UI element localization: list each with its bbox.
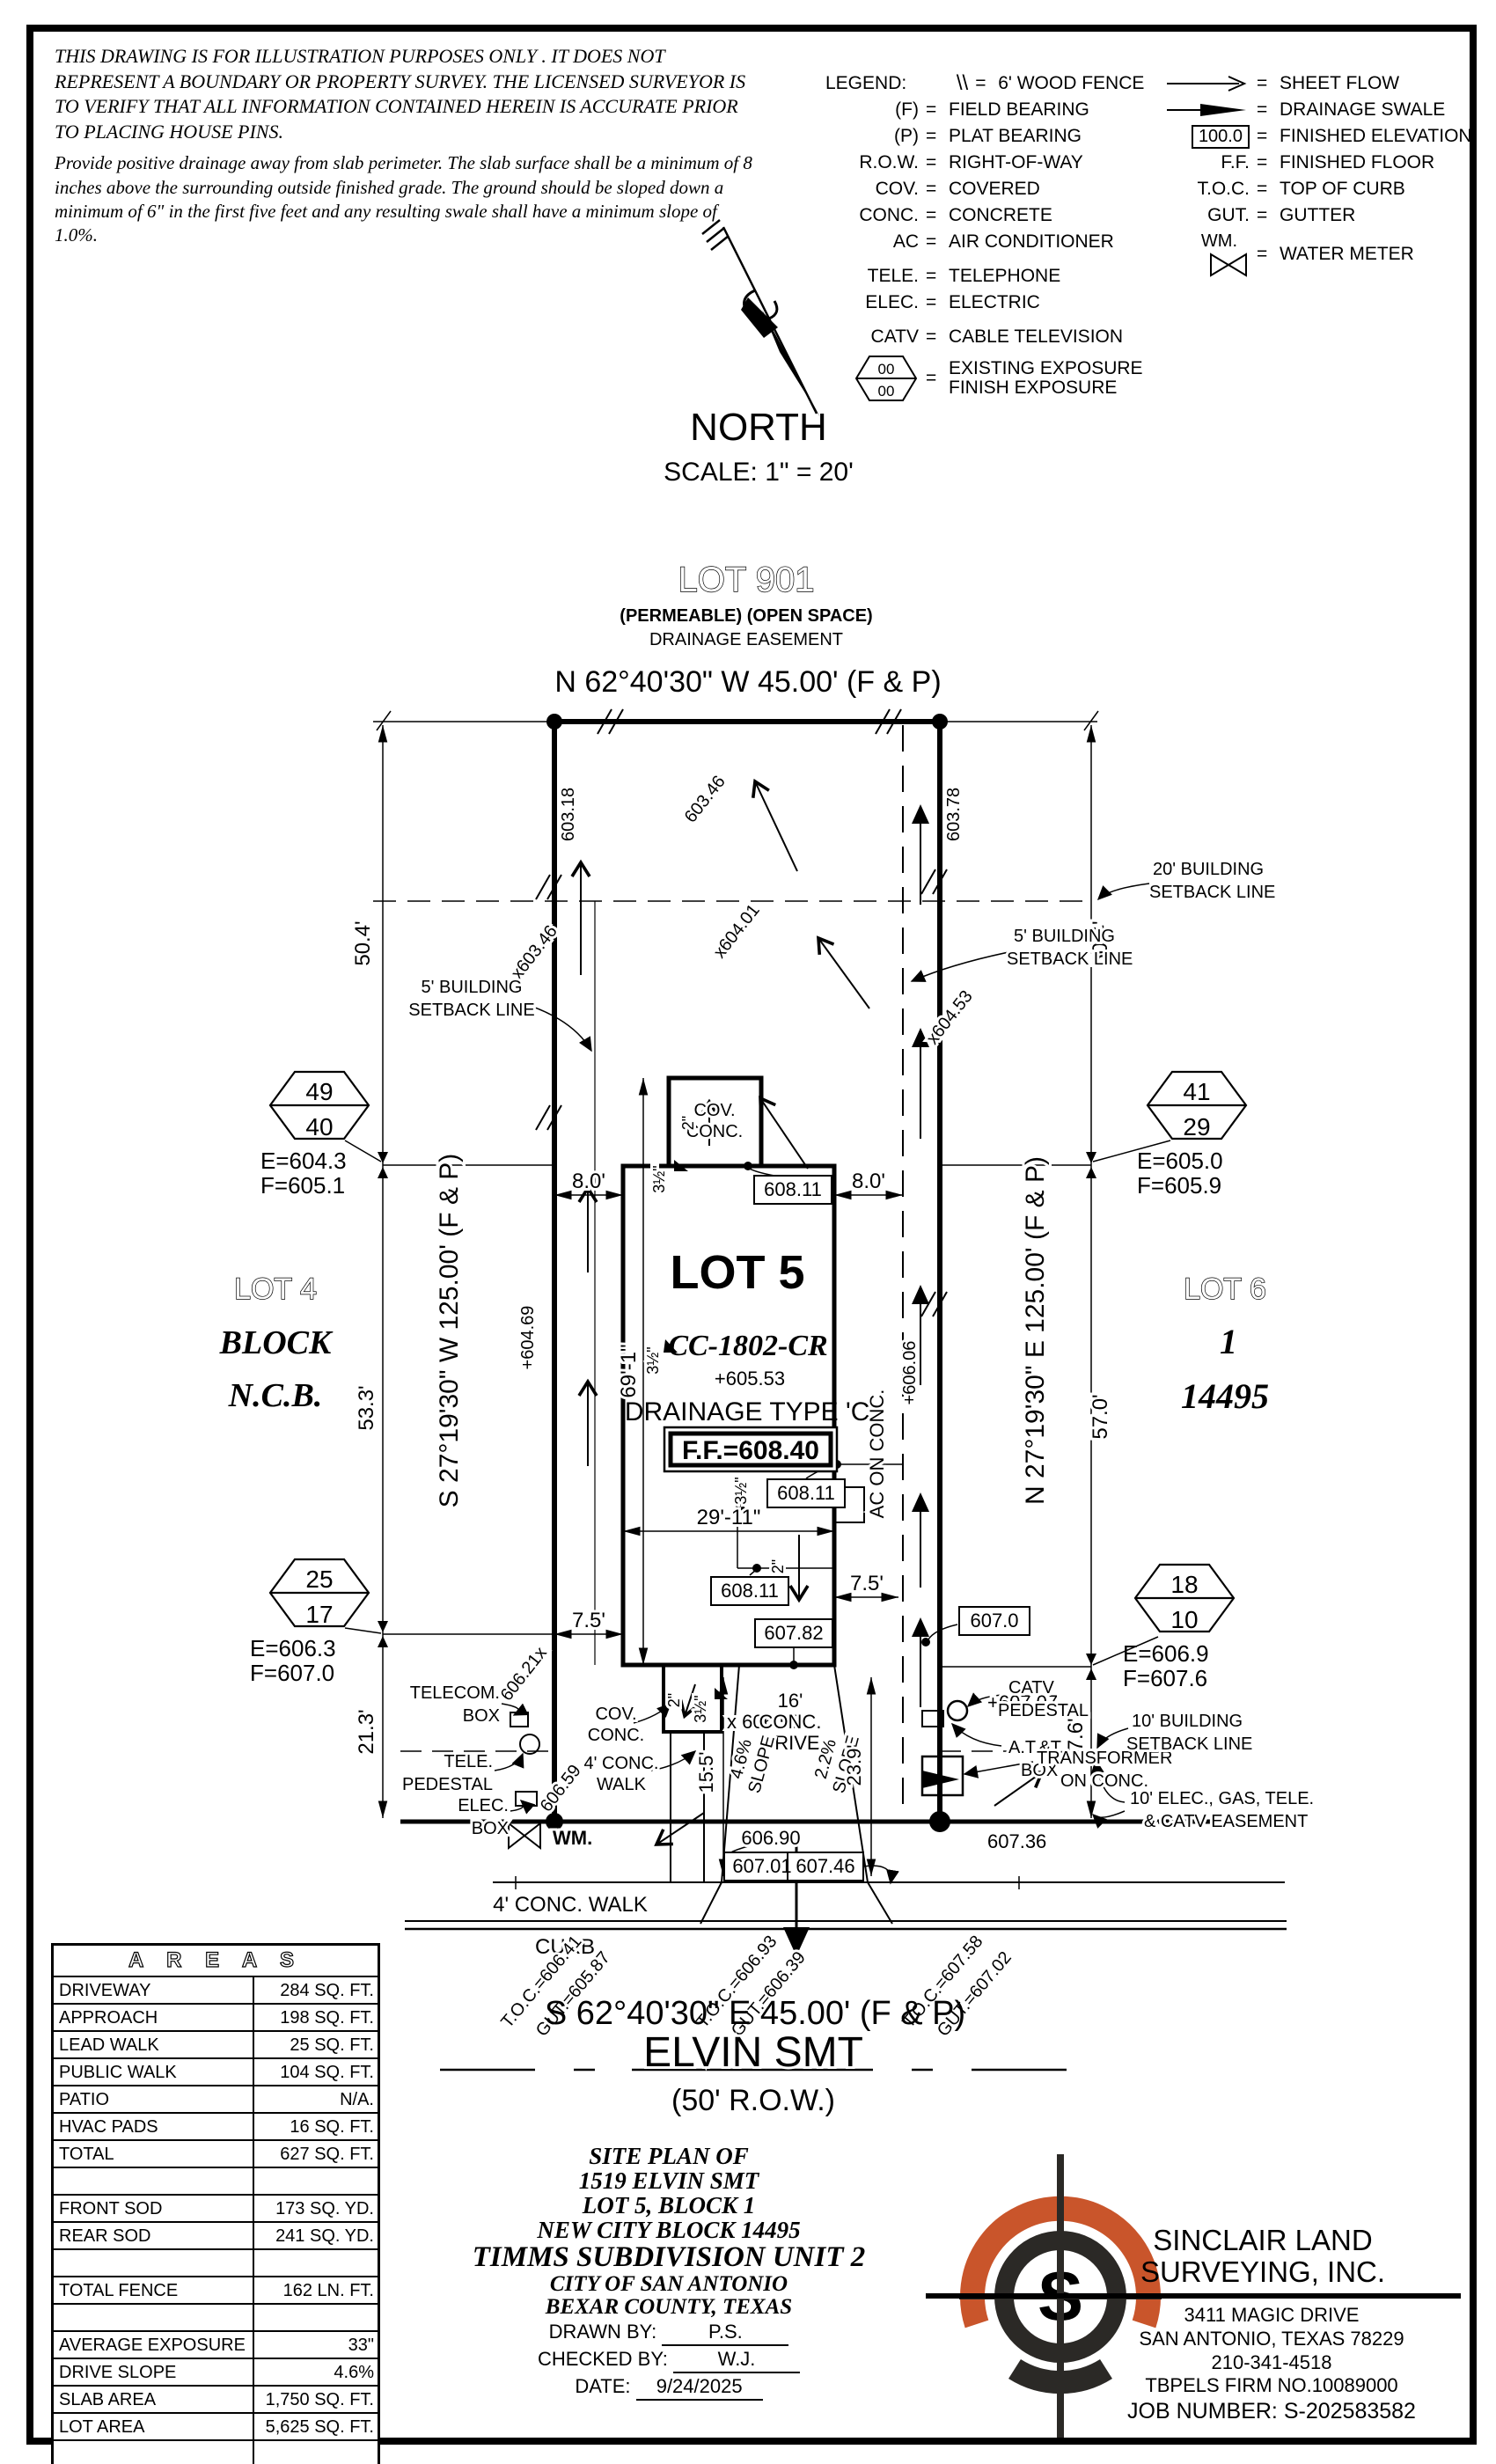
area-value (254, 2441, 378, 2464)
table-row: TOTAL 627 SQ. FT. (54, 2141, 378, 2168)
elev-607-46: 607.46 (796, 1855, 854, 1877)
street-name: ELVIN SMT (643, 2029, 863, 2076)
table-row (54, 2441, 378, 2464)
dim-8-east: 8.0' (852, 1170, 885, 1193)
telecom-box-symbol (510, 1712, 528, 1727)
walk4-l2: WALK (597, 1775, 647, 1794)
area-value: 5,625 SQ. FT. (254, 2414, 378, 2439)
bearing-west: S 27°19'30" W 125.00' (F & P) (435, 1154, 464, 1508)
conc-bottom: CONC. (588, 1726, 644, 1745)
checked-by-row: CHECKED BY: W.J. (414, 2348, 924, 2373)
bearing-south: S 62°40'30" E 45.00' (F & P) (545, 1995, 965, 2032)
elev-607-01: 607.01 (732, 1855, 791, 1877)
title-l5: TIMMS SUBDIVISION UNIT 2 (414, 2242, 924, 2272)
spot-606-59: 606.59 (537, 1761, 585, 1815)
logo-divider-line (926, 2293, 1461, 2299)
ef-br-e: E=606.9 (1123, 1640, 1209, 1667)
dim-53-3: 53.3' (355, 1385, 378, 1430)
firm-tbpels: TBPELS FIRM NO.10089000 (1104, 2374, 1439, 2398)
drainage-type: DRAINAGE TYPE 'C' (625, 1397, 875, 1426)
pad-elevation: +605.53 (715, 1368, 785, 1390)
area-value: 241 SQ. YD. (254, 2223, 378, 2248)
area-label (54, 2305, 254, 2330)
dim-29-11-label: 29'-11" (697, 1506, 761, 1529)
spot-603-46: 603.46 (681, 772, 730, 826)
hex-tr-top: 41 (1183, 1078, 1210, 1105)
area-value: 173 SQ. YD. (254, 2196, 378, 2221)
area-label: LEAD WALK (54, 2032, 254, 2057)
bearing-east: N 27°19'30" E 125.00' (F & P) (1021, 1156, 1050, 1505)
area-label: DRIVEWAY (54, 1977, 254, 2003)
setback20-l1: 20' BUILDING (1153, 860, 1264, 879)
ef-tl-e: E=604.3 (260, 1148, 347, 1174)
model-number: CC-1802-CR (668, 1330, 827, 1362)
area-value: 33" (254, 2332, 378, 2358)
area-value: 25 SQ. FT. (254, 2032, 378, 2057)
dim-2in-a: 2" (679, 1116, 697, 1130)
firm-phone: 210-341-4518 (1104, 2351, 1439, 2375)
elev-608-11-a: 608.11 (764, 1178, 822, 1200)
easement-l1: 10' ELEC., GAS, TELE. (1130, 1789, 1314, 1808)
area-value: 162 LN. FT. (254, 2277, 378, 2303)
scale-label: SCALE: 1" = 20' (664, 458, 854, 487)
telep-l1: TELE. (444, 1752, 493, 1771)
lot6-label: LOT 6 (1184, 1272, 1266, 1306)
catv-pedestal-symbol (948, 1701, 967, 1720)
telep-l2: PEDESTAL (402, 1775, 493, 1794)
lot4-ncb: N.C.B. (228, 1377, 323, 1414)
area-label: TOTAL FENCE (54, 2277, 254, 2303)
title-l6: CITY OF SAN ANTONIO (414, 2273, 924, 2296)
area-value (254, 2168, 378, 2194)
areas-title: A R E A S (54, 1946, 378, 1977)
hex-bl-bottom: 17 (305, 1601, 333, 1628)
easement-l2: & CATV EASEMENT (1144, 1812, 1308, 1831)
catv-l1: CATV (1008, 1678, 1055, 1698)
dim-50-4-west: 50.4' (351, 920, 375, 965)
spot-606-21: 606.21x (497, 1643, 551, 1705)
finished-floor: F.F.=608.40 (682, 1436, 819, 1465)
firm-addr-city: SAN ANTONIO, TEXAS 78229 (1104, 2328, 1439, 2351)
table-row: REAR SOD 241 SQ. YD. (54, 2223, 378, 2250)
elev-607-0: 607.0 (970, 1610, 1018, 1632)
table-row: SLAB AREA 1,750 SQ. FT. (54, 2387, 378, 2414)
lot901-sub: (PERMEABLE) (OPEN SPACE) (620, 606, 872, 626)
area-value: 1,750 SQ. FT. (254, 2387, 378, 2412)
lot901-label: LOT 901 (678, 561, 815, 599)
site-plan-sheet: THIS DRAWING IS FOR ILLUSTRATION PURPOSE… (0, 0, 1496, 2464)
lot6-num: 1 (1220, 1322, 1237, 1361)
elecbox-l2: BOX (472, 1819, 509, 1838)
table-row: PATIO N/A. (54, 2086, 378, 2114)
hex-br-top: 18 (1170, 1571, 1198, 1598)
ac-on-conc: AC ON CONC. (866, 1390, 888, 1519)
title-l7: BEXAR COUNTY, TEXAS (414, 2296, 924, 2319)
title-l1: SITE PLAN OF (414, 2144, 924, 2168)
dim-35-d: 3½" (692, 1695, 709, 1722)
water-meter-symbol (509, 1823, 540, 1848)
setback5-east-l2: SETBACK LINE (1007, 950, 1133, 969)
north-label: NORTH (690, 406, 827, 449)
dim-35-c: 3½" (732, 1477, 750, 1504)
area-label: HVAC PADS (54, 2114, 254, 2139)
area-label: LOT AREA (54, 2414, 254, 2439)
elecbox-l1: ELEC. (458, 1796, 509, 1815)
date-row: DATE: 9/24/2025 (414, 2375, 924, 2401)
title-l4: NEW CITY BLOCK 14495 (414, 2218, 924, 2242)
drive-conc: CONC. (759, 1711, 822, 1733)
setback5-west-l1: 5' BUILDING (422, 978, 523, 997)
area-label: TOTAL (54, 2141, 254, 2167)
table-row (54, 2250, 378, 2277)
lot4-label: LOT 4 (234, 1272, 317, 1306)
area-value: 4.6% (254, 2359, 378, 2385)
elec-box-symbol (516, 1792, 537, 1806)
hex-tl-bottom: 40 (305, 1113, 333, 1140)
table-row: DRIVEWAY 284 SQ. FT. (54, 1977, 378, 2005)
telecom-l1: TELECOM. (410, 1683, 500, 1703)
area-label (54, 2250, 254, 2276)
area-value: 284 SQ. FT. (254, 1977, 378, 2003)
hex-bl-top: 25 (305, 1566, 333, 1593)
area-value (254, 2250, 378, 2276)
areas-rows: DRIVEWAY 284 SQ. FT. APPROACH 198 SQ. FT… (54, 1977, 378, 2464)
job-number: JOB NUMBER: S-202583582 (1096, 2399, 1448, 2424)
title-l2: 1519 ELVIN SMT (414, 2168, 924, 2193)
setback10-l1: 10' BUILDING (1132, 1712, 1243, 1731)
firm-addr-street: 3411 MAGIC DRIVE (1104, 2304, 1439, 2328)
area-value: 198 SQ. FT. (254, 2005, 378, 2030)
sheet-flow-arrows (581, 781, 1042, 1844)
firm-name: SINCLAIR LAND SURVEYING, INC. (1104, 2225, 1421, 2289)
street-row: (50' R.O.W.) (671, 2084, 835, 2117)
lot6-ncb: 14495 (1181, 1376, 1269, 1416)
checked-by-label: CHECKED BY: (538, 2348, 668, 2370)
drawn-by-value: P.S. (662, 2321, 788, 2346)
dim-2in-b: 2" (769, 1559, 787, 1573)
dim-35-b: 3½" (644, 1346, 662, 1374)
table-row: DRIVE SLOPE 4.6% (54, 2359, 378, 2387)
date-value: 9/24/2025 (636, 2375, 763, 2401)
title-block: SITE PLAN OF 1519 ELVIN SMT LOT 5, BLOCK… (414, 2144, 924, 2401)
dim-69-1-label: 69'-1" (617, 1344, 641, 1397)
area-label: APPROACH (54, 2005, 254, 2030)
drive-16: 16' (778, 1690, 803, 1712)
table-row: LEAD WALK 25 SQ. FT. (54, 2032, 378, 2059)
dim-75-west: 7.5' (572, 1609, 605, 1632)
hex-tr-bottom: 29 (1183, 1113, 1210, 1140)
spot-607-36: 607.36 (987, 1830, 1046, 1852)
area-value: N/A. (254, 2086, 378, 2112)
spot-606-06: +606.06 (900, 1341, 920, 1405)
ef-tr-f: F=605.9 (1137, 1172, 1221, 1199)
ef-bl-f: F=607.0 (250, 1660, 334, 1686)
area-label: DRIVE SLOPE (54, 2359, 254, 2385)
lot901-sub2: DRAINAGE EASEMENT (649, 630, 843, 649)
dim-75-east: 7.5' (850, 1572, 884, 1595)
table-row: TOTAL FENCE 162 LN. FT. (54, 2277, 378, 2305)
lot4-block: BLOCK (219, 1324, 334, 1361)
spot-603-78: 603.78 (944, 788, 964, 841)
area-label (54, 2441, 254, 2464)
telecom-l2: BOX (463, 1706, 500, 1726)
spot-x604-53: x604.53 (923, 986, 977, 1048)
table-row: FRONT SOD 173 SQ. YD. (54, 2196, 378, 2223)
table-row (54, 2168, 378, 2196)
setback5-west-l2: SETBACK LINE (408, 1001, 534, 1020)
date-label: DATE: (575, 2375, 630, 2397)
dim-57-0: 57.0' (1089, 1394, 1112, 1439)
area-label: FRONT SOD (54, 2196, 254, 2221)
porch-cov: COV. (693, 1101, 735, 1120)
elev-608-11-c: 608.11 (721, 1580, 779, 1602)
catv-l2: PEDESTAL (998, 1701, 1089, 1720)
dim-23-9-label: 23.9' (843, 1744, 865, 1786)
north-arrow-icon (702, 220, 820, 417)
drawn-by-row: DRAWN BY: P.S. (414, 2321, 924, 2346)
firm-name-l2: SURVEYING, INC. (1104, 2256, 1421, 2288)
spot-x604-01: x604.01 (710, 900, 764, 962)
wm-label: WM. (553, 1827, 592, 1849)
dim-35-a: 3½" (650, 1165, 668, 1192)
xfmr-l2: ON CONC. (1060, 1771, 1148, 1791)
area-value: 627 SQ. FT. (254, 2141, 378, 2167)
elev-608-11-b: 608.11 (777, 1482, 835, 1504)
checked-by-value: W.J. (673, 2348, 800, 2373)
ef-tr-e: E=605.0 (1137, 1148, 1223, 1174)
ef-tl-f: F=605.1 (260, 1172, 345, 1199)
walk4-l1: 4' CONC. (584, 1754, 659, 1773)
setback10-l2: SETBACK LINE (1126, 1734, 1252, 1754)
table-row: HVAC PADS 16 SQ. FT. (54, 2114, 378, 2141)
spot-604-69: +604.69 (518, 1306, 538, 1370)
area-value: 16 SQ. FT. (254, 2114, 378, 2139)
drawn-by-label: DRAWN BY: (549, 2321, 657, 2343)
lot5-label: LOT 5 (670, 1246, 804, 1299)
area-value (254, 2305, 378, 2330)
area-label: PUBLIC WALK (54, 2059, 254, 2085)
public-walk-label: 4' CONC. WALK (493, 1893, 648, 1917)
firm-name-l1: SINCLAIR LAND (1104, 2225, 1421, 2256)
table-row: APPROACH 198 SQ. FT. (54, 2005, 378, 2032)
setback20-l2: SETBACK LINE (1149, 883, 1275, 902)
ef-br-f: F=607.6 (1123, 1665, 1207, 1691)
area-label (54, 2168, 254, 2194)
hex-tl-top: 49 (305, 1078, 333, 1105)
table-row (54, 2305, 378, 2332)
dim-2in-c: 2" (665, 1693, 683, 1707)
firm-address: 3411 MAGIC DRIVE SAN ANTONIO, TEXAS 7822… (1104, 2304, 1439, 2398)
spot-603-18: 603.18 (559, 788, 578, 841)
table-row: AVERAGE EXPOSURE 33" (54, 2332, 378, 2359)
table-row: LOT AREA 5,625 SQ. FT. (54, 2414, 378, 2441)
setback5-east-l1: 5' BUILDING (1014, 927, 1115, 946)
area-value: 104 SQ. FT. (254, 2059, 378, 2085)
dim-8-west: 8.0' (572, 1170, 605, 1193)
area-label: PATIO (54, 2086, 254, 2112)
cov-bottom: COV. (595, 1705, 636, 1724)
area-label: SLAB AREA (54, 2387, 254, 2412)
area-label: AVERAGE EXPOSURE (54, 2332, 254, 2358)
dim-15-5-label: 15.5' (695, 1751, 717, 1793)
bearing-north: N 62°40'30" W 45.00' (F & P) (554, 665, 941, 699)
elev-607-82: 607.82 (764, 1622, 823, 1644)
title-l3: LOT 5, BLOCK 1 (414, 2193, 924, 2218)
dim-21-3: 21.3' (355, 1709, 378, 1754)
table-row: PUBLIC WALK 104 SQ. FT. (54, 2059, 378, 2086)
spot-606-90: 606.90 (741, 1827, 800, 1849)
area-label: REAR SOD (54, 2223, 254, 2248)
hex-br-bottom: 10 (1170, 1606, 1198, 1633)
areas-table: A R E A S DRIVEWAY 284 SQ. FT. APPROACH … (51, 1943, 380, 2464)
ef-bl-e: E=606.3 (250, 1635, 336, 1661)
